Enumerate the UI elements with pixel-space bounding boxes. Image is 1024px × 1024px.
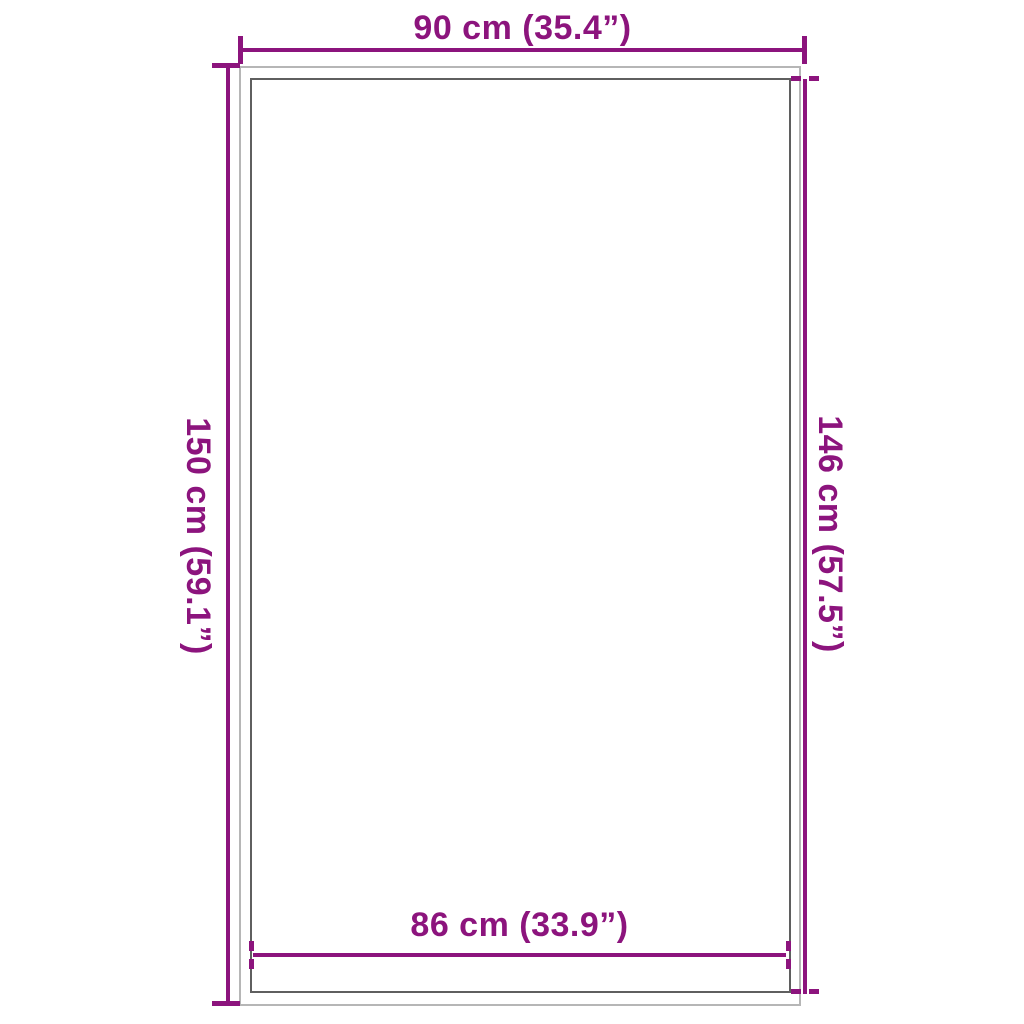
- dimension-dashed-tick-right-bottom: [791, 989, 819, 994]
- dimension-line-left: [226, 64, 230, 1005]
- dimension-label-bottom: 86 cm (33.9”): [253, 908, 786, 942]
- dimension-dashed-tick-bottom-right: [786, 941, 791, 969]
- dimension-diagram: 90 cm (35.4”) 150 cm (59.1”) 146 cm (57.…: [0, 0, 1024, 1024]
- dimension-line-bottom: [253, 953, 786, 957]
- dimension-label-left: 150 cm (59.1”): [175, 236, 215, 836]
- dimension-tick-left-bottom: [212, 1001, 240, 1006]
- dimension-tick-left-top: [212, 63, 240, 68]
- dimension-label-right: 146 cm (57.5”): [807, 234, 847, 834]
- dimension-line-top: [240, 48, 805, 52]
- dimension-dashed-tick-bottom-left: [249, 941, 254, 969]
- product-inner-outline: [250, 78, 791, 993]
- dimension-dashed-tick-right-top: [791, 76, 819, 81]
- dimension-label-top: 90 cm (35.4”): [240, 11, 805, 45]
